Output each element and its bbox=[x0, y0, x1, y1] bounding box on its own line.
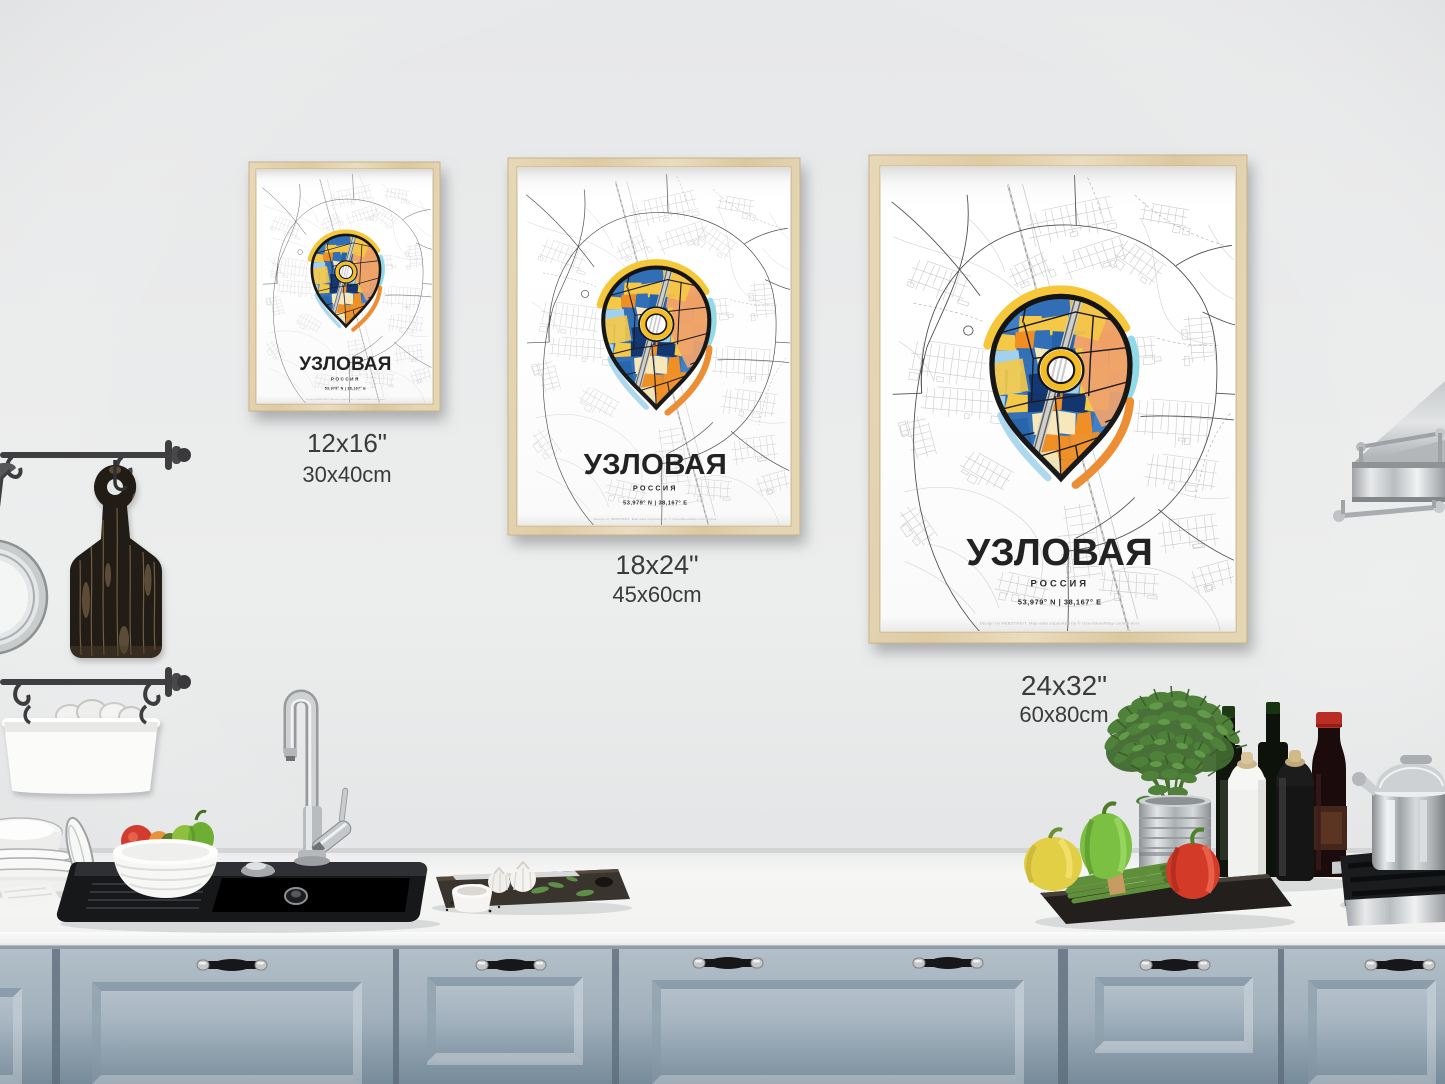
svg-text:24x32": 24x32" bbox=[1021, 670, 1107, 701]
svg-text:12x16": 12x16" bbox=[307, 428, 387, 458]
svg-text:18x24": 18x24" bbox=[615, 550, 698, 580]
svg-text:45x60cm: 45x60cm bbox=[612, 582, 701, 607]
svg-text:30x40cm: 30x40cm bbox=[302, 462, 391, 487]
svg-text:60x80cm: 60x80cm bbox=[1019, 702, 1108, 727]
